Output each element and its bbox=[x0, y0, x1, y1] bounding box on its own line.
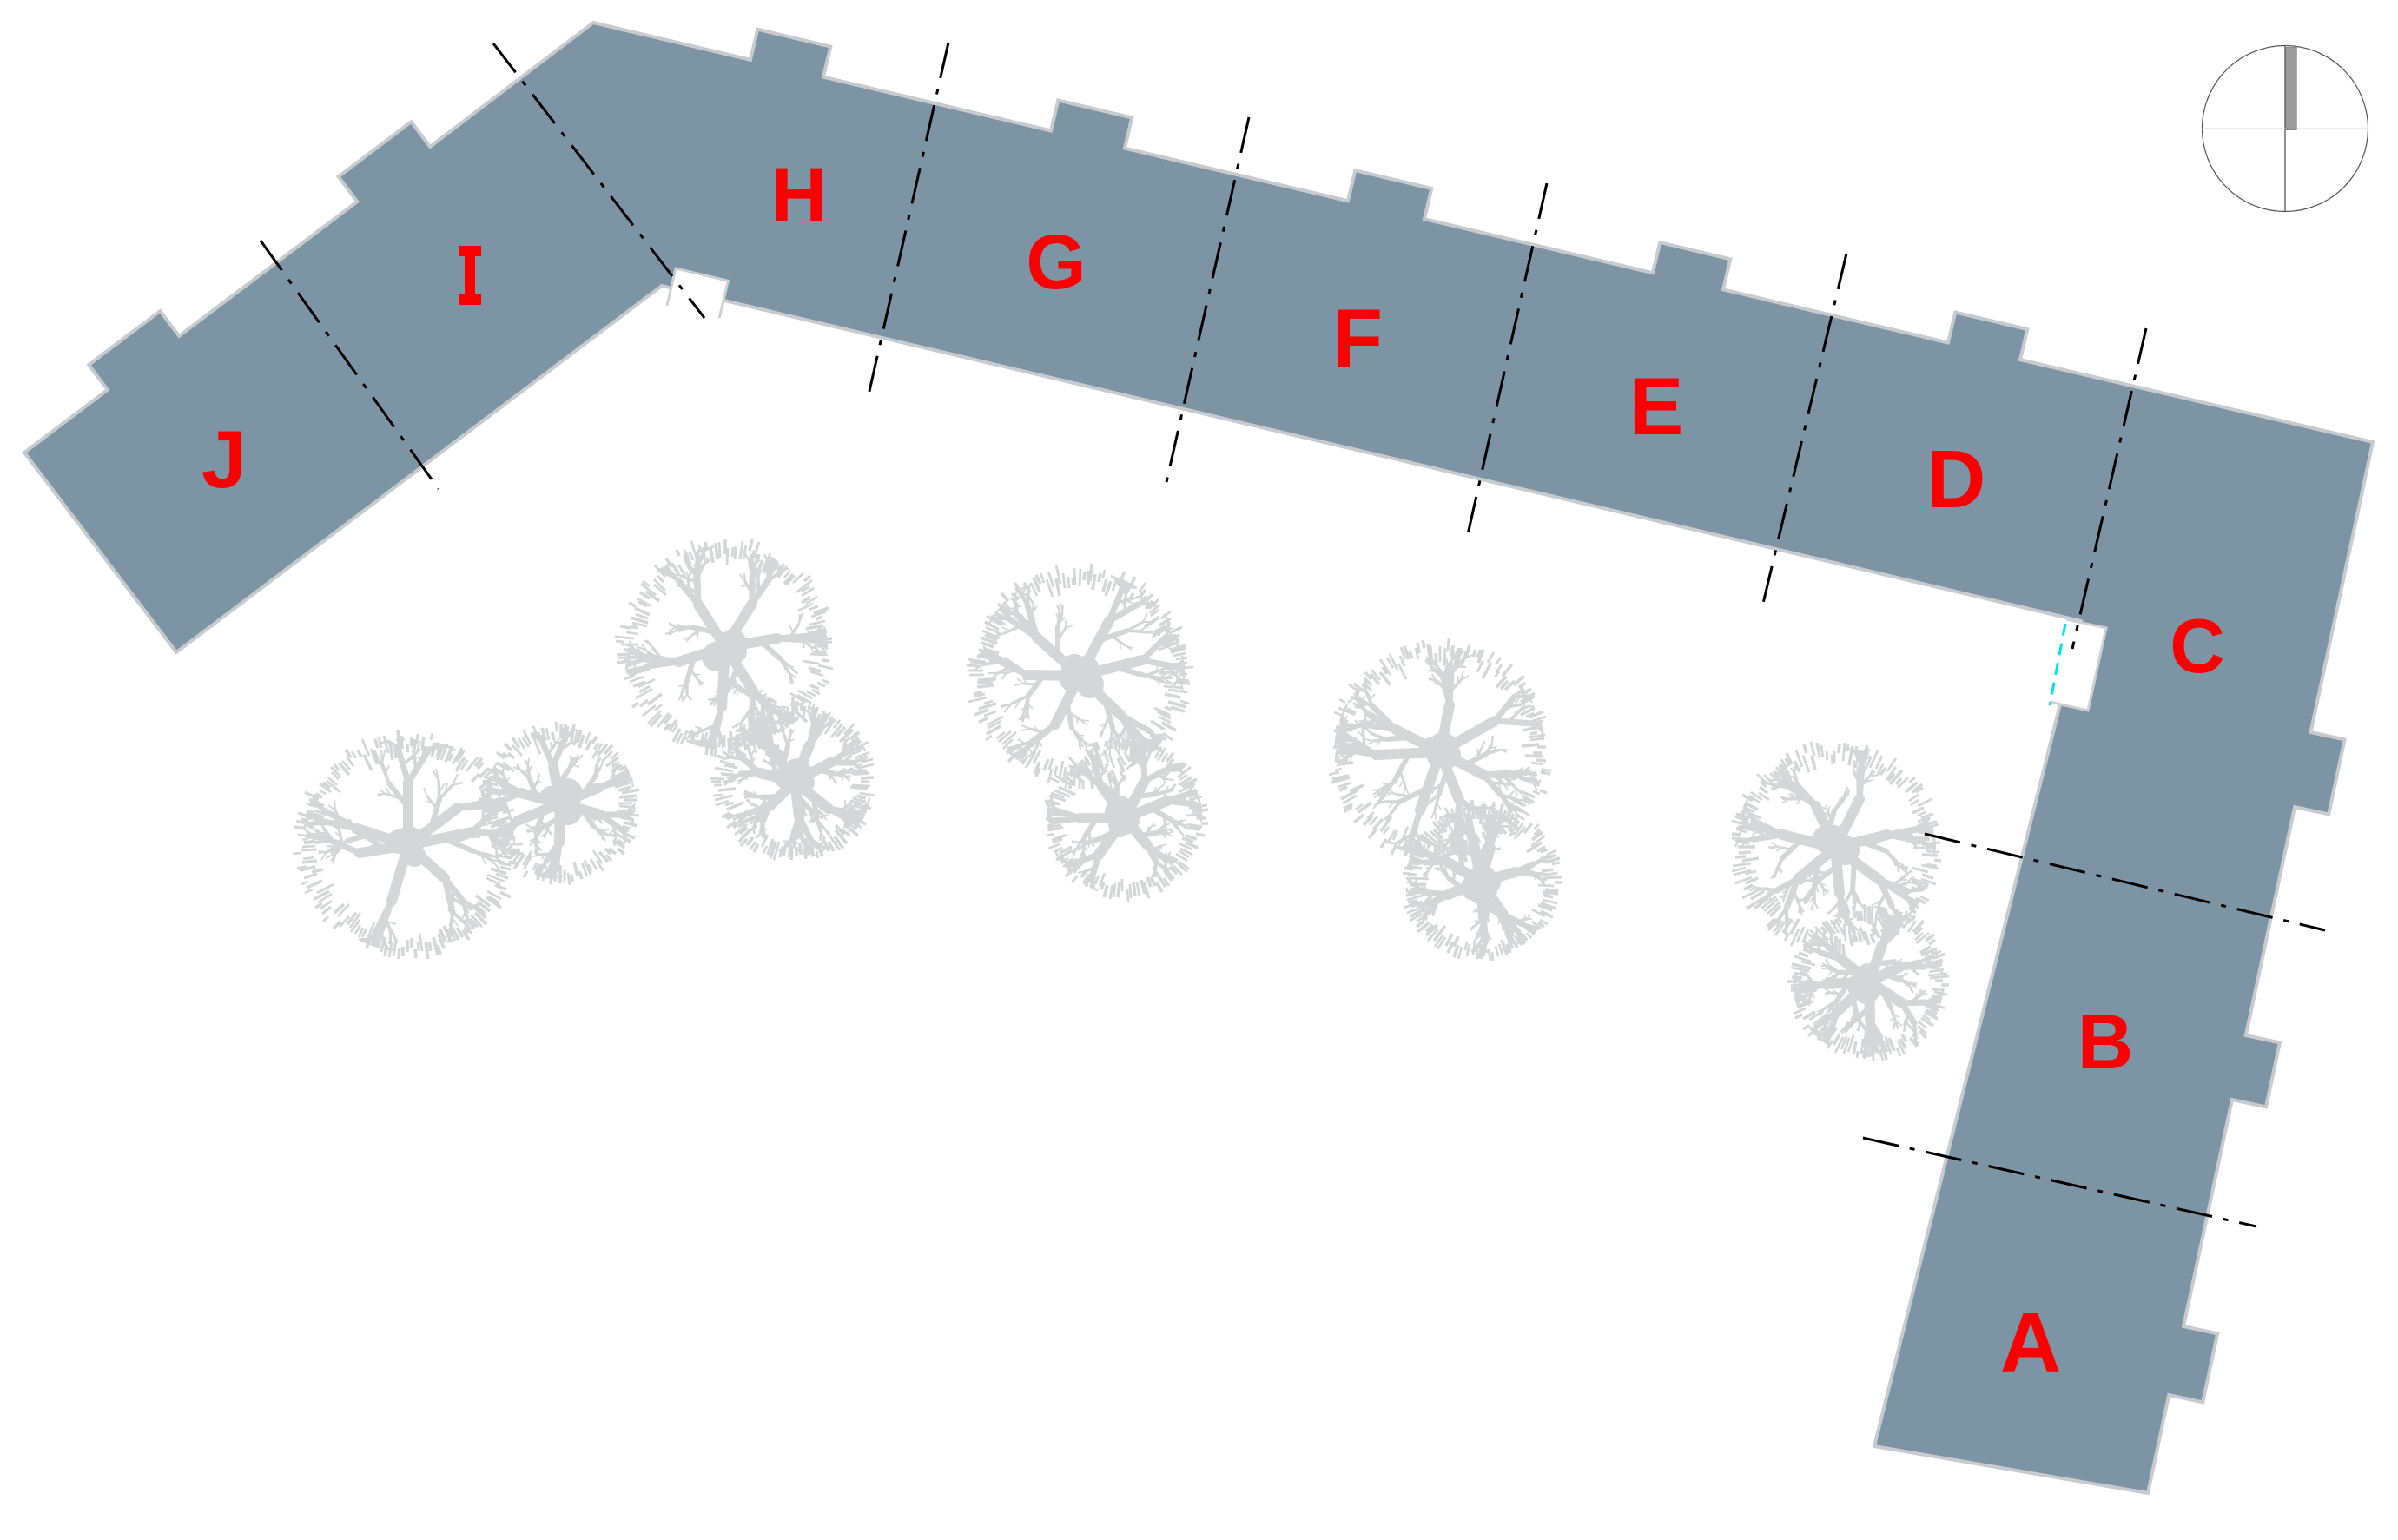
svg-text:C: C bbox=[2170, 603, 2225, 689]
svg-text:F: F bbox=[1332, 293, 1383, 385]
svg-text:G: G bbox=[1026, 218, 1086, 305]
svg-text:B: B bbox=[2078, 998, 2133, 1085]
svg-text:A: A bbox=[2000, 1295, 2062, 1391]
svg-text:D: D bbox=[1926, 433, 1986, 525]
svg-text:H: H bbox=[771, 151, 827, 238]
svg-text:E: E bbox=[1629, 360, 1684, 452]
svg-text:J: J bbox=[201, 413, 247, 505]
